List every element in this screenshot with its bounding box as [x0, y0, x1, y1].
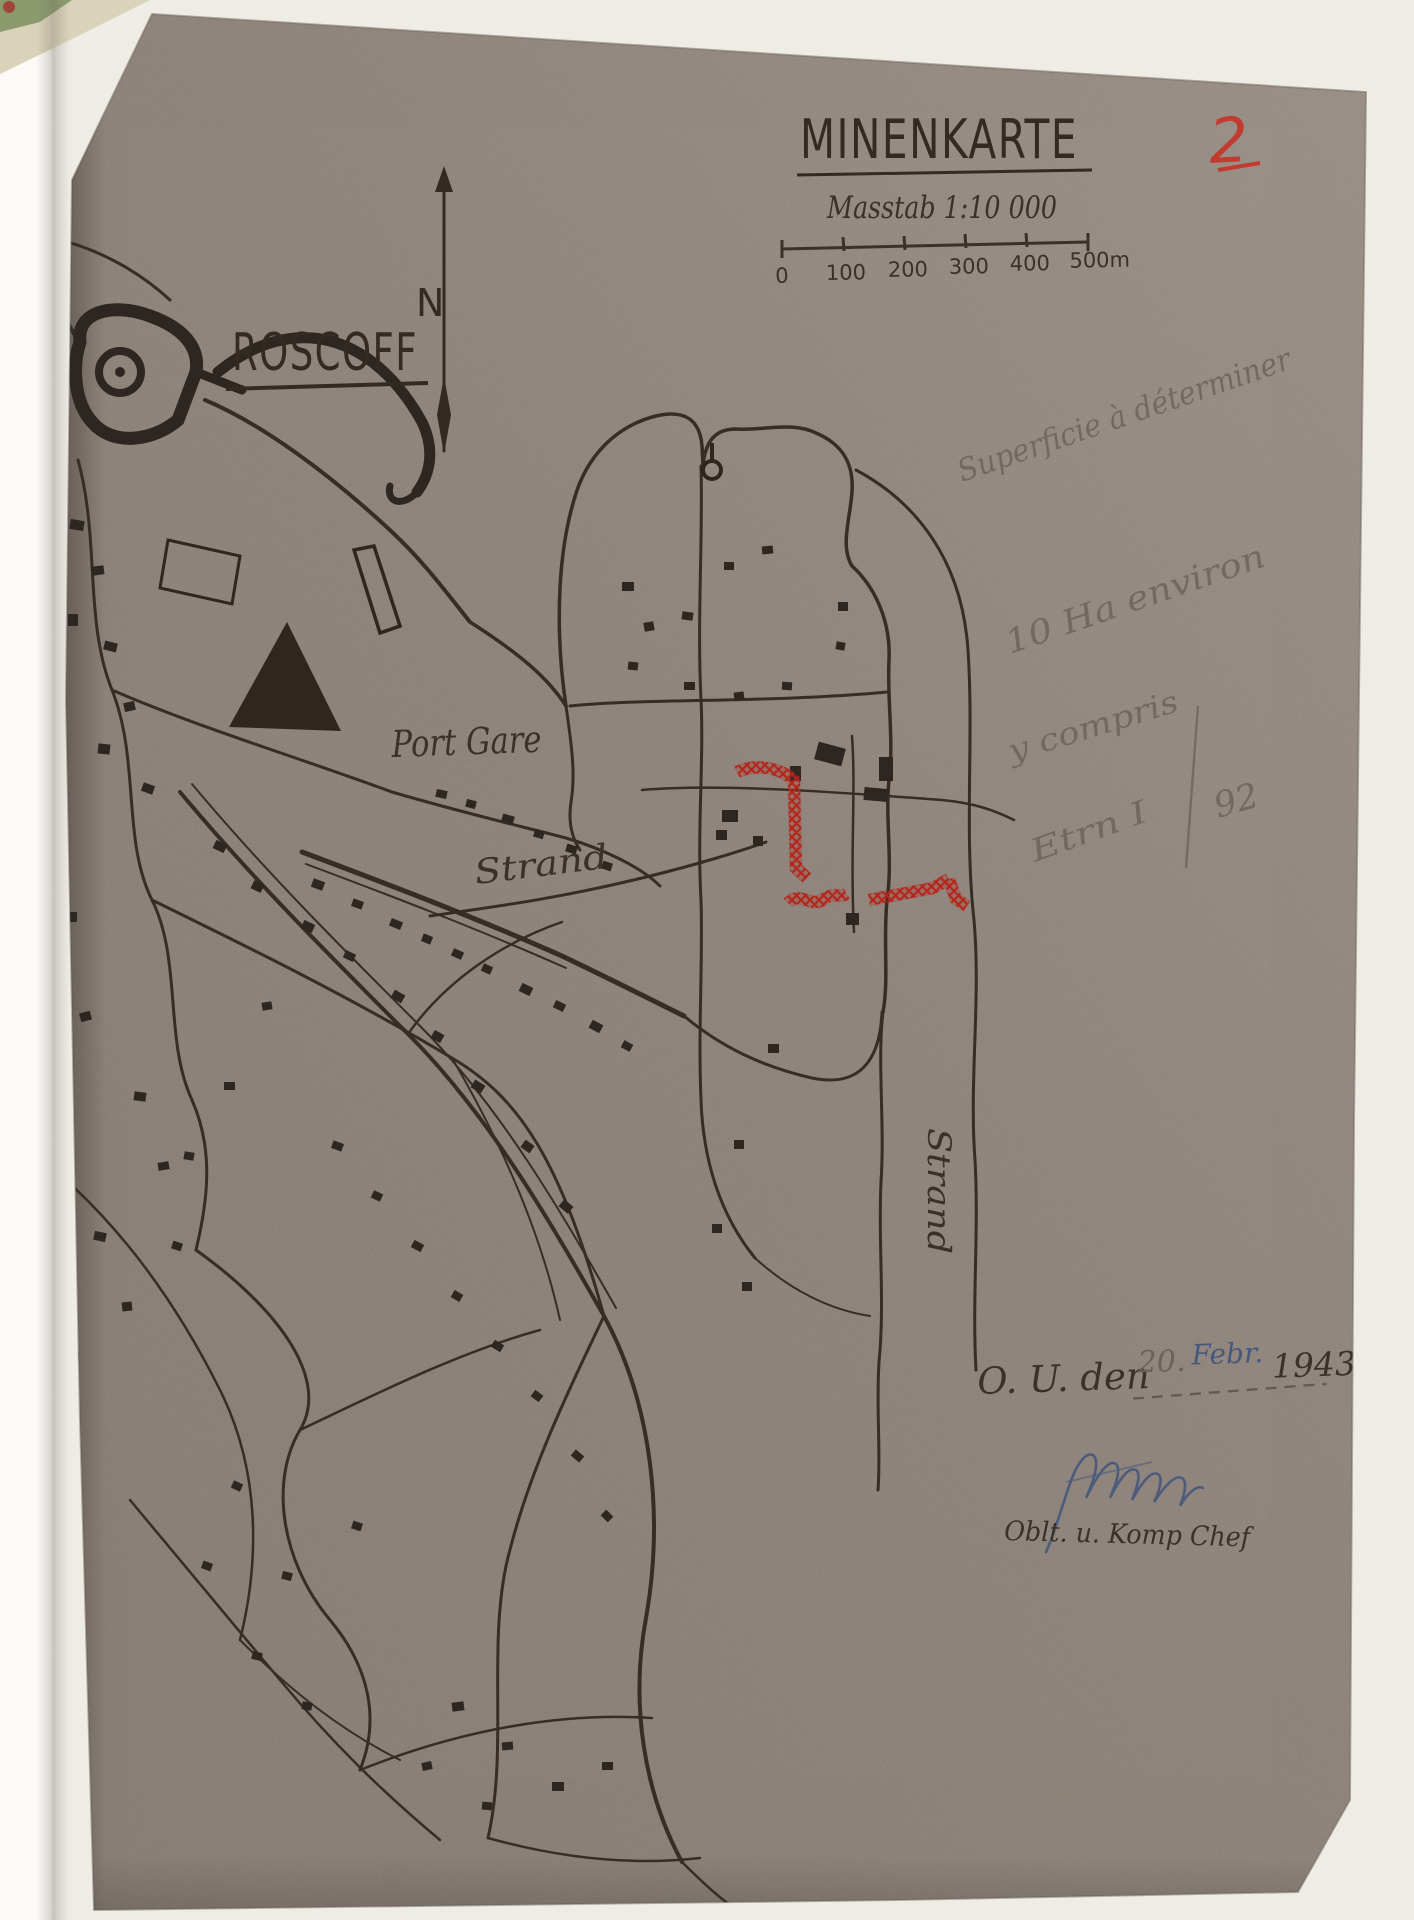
- harbor-light-dot: [115, 367, 125, 377]
- strand-east-label: Strand: [920, 1128, 958, 1254]
- scale-tick-0: 0: [775, 264, 789, 288]
- scale-tick-100: 100: [826, 260, 867, 285]
- scale-label: Masstab 1:10 000: [826, 190, 1057, 226]
- date-prefix: O. U. den: [977, 1354, 1151, 1403]
- north-label: N: [416, 281, 446, 325]
- scale-tick-400: 400: [1010, 251, 1051, 276]
- town-label: ROSCOFF: [232, 323, 418, 383]
- binding-crease-shadow: [36, 0, 70, 1920]
- archival-photo: MINENKARTE Masstab 1:10 000 2 0 100 200 …: [0, 0, 1414, 1920]
- scale-tick-500m: 500m: [1069, 248, 1130, 273]
- map-title: MINENKARTE: [800, 108, 1078, 171]
- port-label: Port Gare: [390, 718, 542, 766]
- date-day: 20.: [1136, 1344, 1186, 1381]
- scale-tick-200: 200: [888, 257, 929, 282]
- scale-tick-300: 300: [949, 254, 990, 279]
- minenkarte-map: MINENKARTE Masstab 1:10 000 2 0 100 200 …: [0, 0, 1414, 1920]
- date-year: 1943: [1271, 1344, 1356, 1386]
- paper-sheet: [0, 0, 1414, 1920]
- signer-role: Oblt. u. Komp Chef: [1004, 1516, 1254, 1554]
- red-page-fleck: [3, 1, 15, 13]
- date-month: Febr.: [1190, 1336, 1264, 1372]
